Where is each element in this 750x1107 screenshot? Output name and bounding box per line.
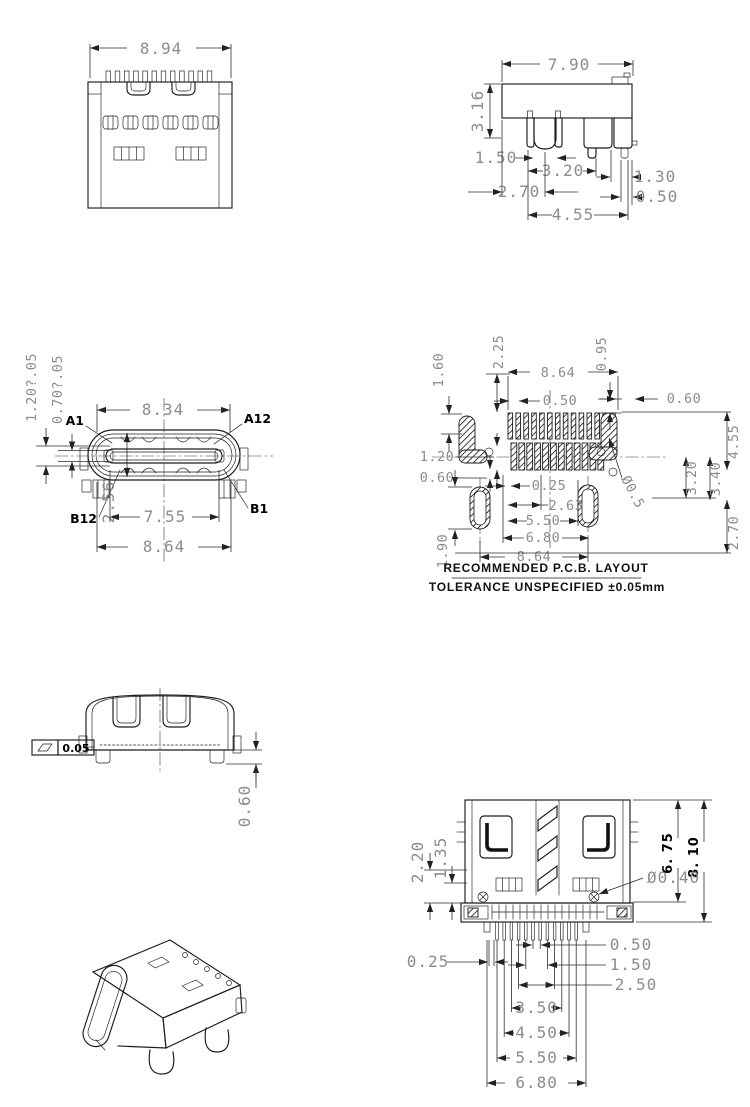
dim-pcb-4-55: 4.55 [726, 425, 742, 460]
dim-side-right: 0.50 [636, 187, 679, 206]
rear-view: 0.05 0.60 [32, 688, 262, 827]
mount-hole-symbol-right [589, 892, 599, 902]
dim-rear-standoff: 0.60 [235, 785, 254, 828]
dim-bottom-0-50: 0.50 [610, 935, 653, 954]
flatness-callout: 0.05 [32, 740, 94, 755]
flatness-value: 0.05 [62, 742, 89, 755]
dim-pcb-6-80: 6.80 [526, 530, 561, 546]
dim-side-pin: 1.30 [634, 167, 677, 186]
dim-front-opening: 8.34 [142, 400, 185, 419]
dim-bottom-hole: Ø0.40 [647, 868, 700, 887]
mount-pads-row [114, 147, 206, 160]
side-view: 7.90 3.16 1.50 3.20 1.30 [468, 55, 678, 224]
dim-bottom-4-50: 4.50 [515, 1023, 558, 1042]
dim-pcb-hole: Ø0.5 [617, 473, 647, 511]
engineering-drawing-sheet: 8.94 [0, 0, 750, 1107]
dim-pcb-0-25: 0.25 [532, 478, 567, 494]
dim-pcb-1-60: 1.60 [431, 353, 447, 388]
dim-pcb-pitch: 0.50 [543, 393, 578, 409]
bottom-body [457, 800, 638, 940]
dim-pcb-3-20: 3.20 [684, 461, 700, 496]
dim-bottom-1-50: 1.50 [610, 955, 653, 974]
dim-pcb-2-25: 2.25 [491, 335, 507, 370]
dim-front-tol-outer: 1.20?.05 [24, 353, 40, 422]
side-view-body [502, 73, 637, 158]
dim-side-height: 3.16 [468, 90, 487, 133]
dim-pcb-0-60-left: 0.60 [420, 470, 455, 486]
dim-side-leg: 1.50 [475, 148, 518, 167]
dim-pcb-0-60-right: 0.60 [667, 391, 702, 407]
flatness-parallelogram-icon [38, 744, 52, 751]
pcb-pads-upper-row [508, 413, 615, 439]
dim-side-left: 2.70 [498, 182, 541, 201]
datum-target-circle-left [485, 448, 493, 456]
dim-pcb-3-40: 3.40 [708, 462, 724, 497]
top-view-body [88, 71, 232, 208]
bottom-view: 2.20 1.35 6. 75 8. 10 Ø0.40 0.25 0.50 1.… [407, 800, 712, 1092]
pin-label-b12: B12 [70, 511, 97, 526]
dim-top-width: 8.94 [140, 39, 183, 58]
pcb-note-title: RECOMMENDED P.C.B. LAYOUT [443, 561, 648, 575]
dim-pcb-row: 8.64 [541, 365, 576, 381]
dim-side-span: 3.20 [542, 161, 585, 180]
dim-bottom-3-50: 3.50 [515, 998, 558, 1017]
dim-pcb-2-70: 2.70 [726, 516, 742, 551]
iso-mating-face [80, 962, 131, 1050]
shell-teeth [106, 71, 212, 82]
dim-front-shell: 8.64 [143, 537, 186, 556]
dim-bottom-2-20: 2.20 [408, 841, 427, 884]
dim-bottom-6-80: 6.80 [515, 1073, 558, 1092]
dim-front-inner: 7.55 [144, 507, 187, 526]
dim-bottom-5-50: 5.50 [515, 1048, 558, 1067]
pin-label-a12: A12 [244, 411, 271, 426]
dim-pcb-1-20: 1.20 [420, 449, 455, 465]
dim-front-tol-tongue: 0.70?.05 [50, 355, 66, 424]
drawing-canvas: 8.94 [0, 0, 750, 1107]
dim-pcb-5-50: 5.50 [526, 513, 561, 529]
dim-bottom-1-35: 1.35 [431, 837, 450, 880]
front-view: 8.34 A1 A12 B12 B1 2.56 7.55 8.64 1.20?.… [24, 353, 273, 562]
dim-bottom-0-25: 0.25 [407, 952, 450, 971]
pin-label-a1: A1 [66, 413, 84, 428]
mount-hole-symbol-left [478, 892, 488, 902]
terminal-pins [484, 922, 589, 940]
dim-pcb-0-95: 0.95 [594, 337, 610, 372]
isometric-view [80, 940, 246, 1074]
contact-pads-row [103, 116, 218, 129]
pin-label-b1: B1 [250, 501, 268, 516]
dim-side-total: 4.55 [552, 205, 595, 224]
pcb-layout-view: 8.64 0.50 2.25 1.60 0.95 0.60 1.20 0.60 [420, 335, 742, 594]
datum-target-circle-hole [609, 468, 617, 476]
dim-bottom-2-50: 2.50 [615, 975, 658, 994]
top-view: 8.94 [88, 39, 232, 208]
dim-side-width: 7.90 [548, 55, 591, 74]
pcb-note-tolerance: TOLERANCE UNSPECIFIED ±0.05mm [429, 580, 665, 594]
